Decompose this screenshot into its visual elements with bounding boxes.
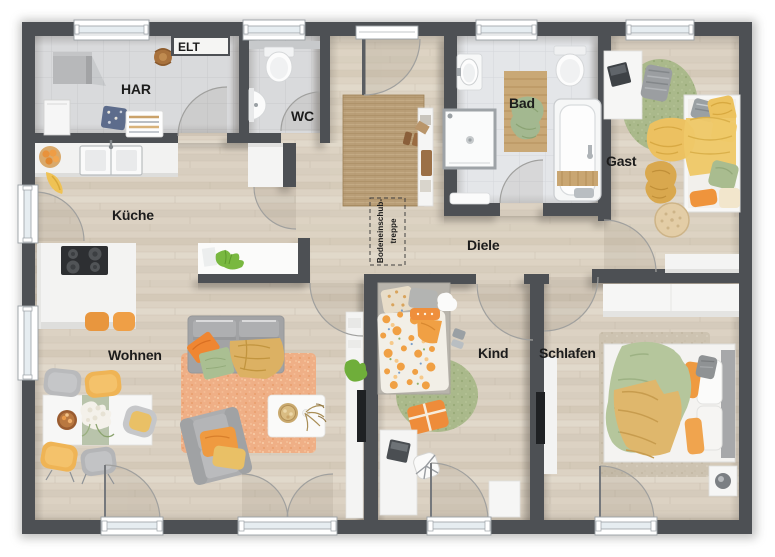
svg-text:Schlafen: Schlafen <box>539 345 596 361</box>
svg-text:HAR: HAR <box>121 81 151 97</box>
svg-text:Bodeneinschub-: Bodeneinschub- <box>376 199 385 263</box>
svg-text:Bad: Bad <box>509 95 535 111</box>
svg-text:WC: WC <box>291 108 314 124</box>
svg-text:treppe: treppe <box>389 218 398 243</box>
svg-text:Diele: Diele <box>467 237 500 253</box>
svg-text:Wohnen: Wohnen <box>108 347 162 363</box>
svg-text:Kind: Kind <box>478 345 508 361</box>
svg-text:Küche: Küche <box>112 207 154 223</box>
svg-text:Gast: Gast <box>606 153 637 169</box>
svg-text:ELT: ELT <box>178 40 200 54</box>
